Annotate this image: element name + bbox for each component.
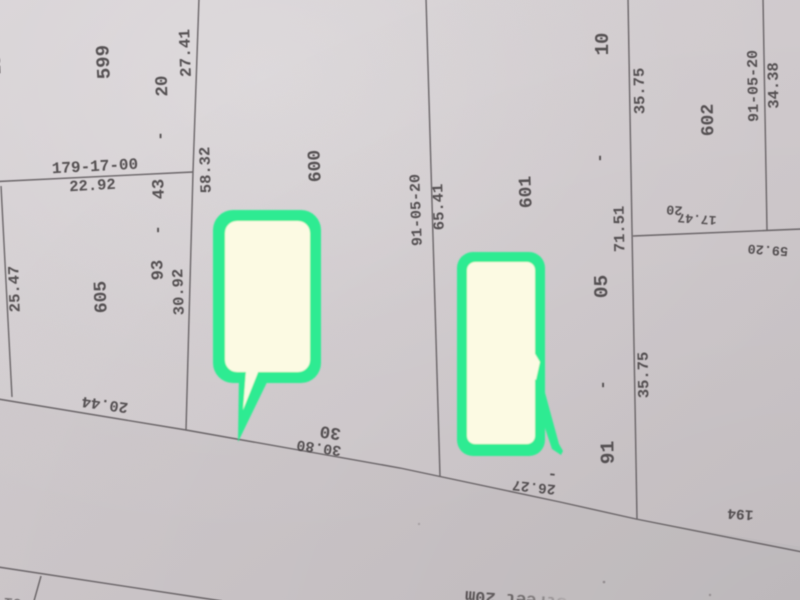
svg-text:-: - <box>547 465 558 484</box>
svg-text:602: 602 <box>699 104 720 137</box>
svg-text:194: 194 <box>727 504 754 522</box>
svg-text:91-05-20: 91-05-20 <box>745 50 763 122</box>
svg-text:20: 20 <box>153 75 174 97</box>
svg-text:599: 599 <box>92 44 116 79</box>
svg-text:35.75: 35.75 <box>635 352 654 399</box>
svg-text:601: 601 <box>516 175 537 208</box>
svg-text:59.20: 59.20 <box>747 240 788 258</box>
svg-text:20: 20 <box>666 200 683 216</box>
svg-text:-: - <box>591 153 609 162</box>
svg-text:22.92: 22.92 <box>69 176 116 196</box>
svg-text:600: 600 <box>305 149 326 182</box>
svg-text:61: 61 <box>3 593 22 600</box>
svg-text:43: 43 <box>150 178 170 199</box>
svg-text:25.47: 25.47 <box>5 265 25 312</box>
svg-text:27.41: 27.41 <box>176 29 196 78</box>
svg-text:71.51: 71.51 <box>611 206 630 253</box>
svg-text:605: 605 <box>91 280 112 313</box>
svg-text:-: - <box>594 380 612 389</box>
svg-text:34.38: 34.38 <box>765 62 784 109</box>
svg-text:58.32: 58.32 <box>196 146 216 193</box>
svg-text:91: 91 <box>597 441 619 465</box>
svg-text:10: 10 <box>592 33 614 56</box>
svg-text:93: 93 <box>149 259 169 280</box>
svg-text:-: - <box>152 131 170 140</box>
svg-text:35.75: 35.75 <box>631 68 650 115</box>
svg-text:05: 05 <box>591 275 613 299</box>
svg-text:30.92: 30.92 <box>169 268 189 315</box>
svg-text:65.41: 65.41 <box>429 183 449 230</box>
svg-text:91-05-20: 91-05-20 <box>407 174 427 247</box>
svg-text:-: - <box>149 225 167 234</box>
svg-text:25: 25 <box>0 55 5 74</box>
